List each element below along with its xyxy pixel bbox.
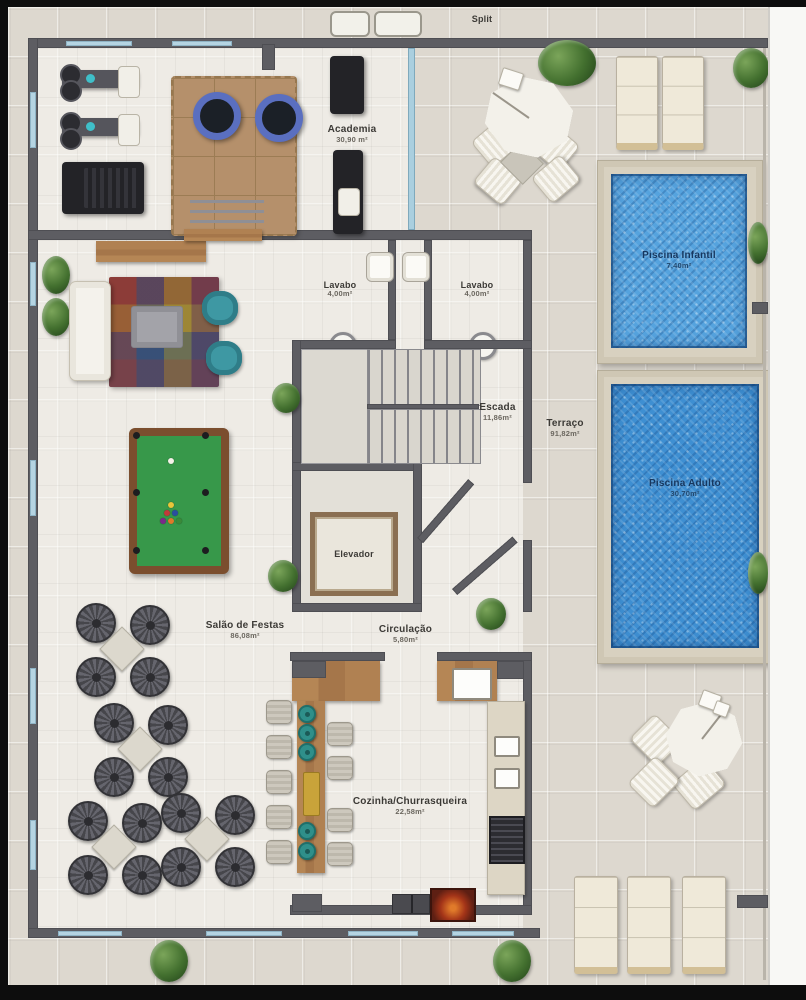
- frame-top: [0, 0, 806, 7]
- lavabo-right-label: Lavabo 4,00m²: [428, 280, 526, 299]
- dining-chair: [148, 757, 188, 797]
- plant-right-edge-2: [748, 552, 768, 594]
- elevator-car: Elevador: [310, 512, 398, 596]
- wicker-stool: [327, 722, 353, 746]
- dining-chair: [215, 847, 255, 887]
- wall-pier-gym: [262, 44, 275, 70]
- scan-white-margin: [768, 7, 806, 985]
- gym-machine-right-1: [330, 56, 364, 114]
- bar-stool-teal: [298, 705, 316, 723]
- wicker-stool: [266, 735, 292, 759]
- exercise-ball-2: [255, 94, 303, 142]
- circulation-area: 5,80m²: [358, 636, 453, 645]
- window-bottom-1: [58, 931, 122, 936]
- wicker-stool: [266, 700, 292, 724]
- window-left-4: [30, 668, 36, 724]
- split-ac-unit-2: [374, 11, 422, 37]
- lavabo-basin-1: [366, 252, 394, 282]
- kitchen-pier-left: [292, 661, 326, 678]
- bar-tray: [303, 772, 320, 816]
- window-left-3: [30, 460, 36, 516]
- exercise-ball-1: [193, 92, 241, 140]
- wicker-stool: [327, 756, 353, 780]
- lounge-chair-top-1: [616, 56, 658, 150]
- gym-seat-dot-2: [86, 122, 95, 131]
- kids-pool-label: Piscina Infantil 7,40m²: [614, 250, 744, 270]
- split-label: Split: [452, 14, 512, 24]
- window-bottom-2: [206, 931, 282, 936]
- party-room-area: 86,08m²: [180, 632, 310, 641]
- sideboard: [96, 241, 206, 262]
- gym-weight-1b: [60, 80, 82, 102]
- coffee-table: [131, 306, 183, 348]
- cabinet-doors: [392, 894, 430, 914]
- kitchen-sink-1: [494, 736, 520, 757]
- kitchen-pier-right: [497, 661, 524, 679]
- wicker-stool: [266, 840, 292, 864]
- gym-glass-wall: [408, 48, 415, 230]
- circulation-name: Circulação: [379, 624, 432, 635]
- pool-table-pocket-bl: [133, 547, 140, 554]
- window-bottom-4: [452, 931, 514, 936]
- dining-chair: [130, 605, 170, 645]
- pool-table-pocket-ml: [133, 489, 140, 496]
- barbecue-grill: [430, 888, 476, 922]
- kitchen-appliance: [452, 668, 492, 700]
- wall-stub-right-1: [752, 302, 768, 314]
- window-left-2: [30, 262, 36, 306]
- kitchen-side-counter: [487, 701, 525, 895]
- split-name: Split: [472, 14, 493, 24]
- armchair-1: [202, 291, 238, 325]
- wall-shelf: [184, 229, 262, 241]
- plant-living-2: [42, 298, 70, 336]
- terrace-area: 91,82m²: [522, 430, 608, 439]
- kitchen-area: 22,58m²: [330, 808, 490, 817]
- dining-chair: [148, 705, 188, 745]
- elevator-label: Elevador: [334, 549, 374, 559]
- plant-core-west-1: [272, 383, 300, 413]
- wall-kitchen-top-left: [290, 652, 385, 661]
- wicker-stool: [266, 770, 292, 794]
- window-top-2: [172, 41, 232, 46]
- gym-pad-2: [118, 114, 140, 146]
- lavabo-right-area: 4,00m²: [428, 290, 526, 299]
- kitchen-sink-2: [494, 768, 520, 789]
- wall-east-mid: [523, 540, 532, 612]
- sofa: [69, 281, 111, 381]
- ball-rack-6: [176, 518, 182, 524]
- lounge-chair-bottom-1: [574, 876, 618, 974]
- adult-pool-area: 30,70m²: [618, 490, 752, 499]
- terrace-name: Terraço: [546, 418, 583, 429]
- dining-chair: [76, 657, 116, 697]
- dining-chair: [122, 855, 162, 895]
- barbell-rack: [190, 200, 264, 226]
- ball-rack-4: [160, 518, 166, 524]
- gym-pad-1: [118, 66, 140, 98]
- wall-core-bottom: [292, 603, 422, 612]
- gym-seat-dot-1: [86, 74, 95, 83]
- wicker-stool: [266, 805, 292, 829]
- lounge-chair-bottom-2: [627, 876, 671, 974]
- plant-core-west-2: [268, 560, 298, 592]
- party-room-label: Salão de Festas 86,08m²: [180, 620, 310, 640]
- kitchen-pier-bottom: [292, 894, 322, 912]
- stair-flight-upper: [367, 349, 481, 406]
- wall-stub-right-2: [737, 895, 768, 908]
- gym-weight-2b: [60, 128, 82, 150]
- gym-name: Academia: [328, 124, 377, 135]
- plant-right-edge-1: [748, 222, 768, 264]
- treadmill-belt: [84, 168, 138, 208]
- plant-circulation: [476, 598, 506, 630]
- cue-ball: [168, 458, 174, 464]
- ball-rack-3: [172, 510, 178, 516]
- window-top-1: [66, 41, 132, 46]
- gym-machine-right-seat: [338, 188, 360, 216]
- dining-chair: [130, 657, 170, 697]
- party-room-name: Salão de Festas: [206, 620, 285, 631]
- wicker-stool: [327, 842, 353, 866]
- wall-top: [28, 38, 768, 48]
- wall-east-upper: [523, 240, 532, 483]
- kitchen-label: Cozinha/Churrasqueira 22,58m²: [330, 796, 490, 816]
- bar-stool-teal: [298, 743, 316, 761]
- dining-chair: [94, 757, 134, 797]
- ball-rack-1: [168, 502, 174, 508]
- wall-core-top-right: [424, 340, 532, 349]
- stairs-name: Escada: [479, 402, 515, 413]
- pool-table: [129, 428, 229, 574]
- cooktop-grill: [489, 816, 525, 864]
- terrace-label: Terraço 91,82m²: [522, 418, 608, 438]
- wall-kitchen-top-right: [437, 652, 532, 661]
- window-left-5: [30, 820, 36, 870]
- bar-stool-teal: [298, 822, 316, 840]
- pool-table-pocket-mr: [202, 489, 209, 496]
- lounge-chair-top-2: [662, 56, 704, 150]
- window-bottom-3: [348, 931, 418, 936]
- window-left-1: [30, 92, 36, 148]
- wall-core-top-left: [292, 340, 396, 349]
- gym-area: 30,90 m²: [300, 136, 404, 145]
- kids-pool-area: 7,40m²: [614, 262, 744, 271]
- split-ac-unit-1: [330, 11, 370, 37]
- ball-rack-5: [168, 518, 174, 524]
- adult-pool-water: [611, 384, 759, 648]
- ball-rack-2: [164, 510, 170, 516]
- kids-pool-name: Piscina Infantil: [642, 250, 716, 261]
- bar-stool-teal: [298, 842, 316, 860]
- plant-terrace-corner: [733, 48, 769, 88]
- pool-table-pocket-br: [202, 547, 209, 554]
- dining-chair: [68, 855, 108, 895]
- lounge-chair-bottom-3: [682, 876, 726, 974]
- plant-terrace-top: [538, 40, 596, 86]
- plant-balcony-2: [493, 940, 531, 982]
- circulation-label: Circulação 5,80m²: [358, 624, 453, 644]
- stair-landing: [301, 349, 369, 464]
- adult-pool-label: Piscina Adulto 30,70m²: [618, 478, 752, 498]
- frame-left: [0, 0, 8, 1000]
- dining-chair: [161, 847, 201, 887]
- gym-label: Academia 30,90 m²: [300, 124, 404, 144]
- dining-chair: [215, 795, 255, 835]
- lavabo-basin-2: [402, 252, 430, 282]
- wicker-stool: [327, 808, 353, 832]
- terrace-edge-line: [763, 48, 766, 980]
- pool-table-pocket-tl: [133, 432, 140, 439]
- lavabo-left-area: 4,00m²: [292, 290, 388, 299]
- dining-chair: [122, 803, 162, 843]
- plant-living-1: [42, 256, 70, 294]
- plant-balcony-1: [150, 940, 188, 982]
- kitchen-name: Cozinha/Churrasqueira: [353, 796, 467, 807]
- pool-table-pocket-tr: [202, 432, 209, 439]
- floor-plan-screenshot: { "title": "Residential common-area floo…: [0, 0, 806, 1000]
- adult-pool-name: Piscina Adulto: [649, 478, 721, 489]
- bar-stool-teal: [298, 724, 316, 742]
- armchair-2: [206, 341, 242, 375]
- lavabo-left-label: Lavabo 4,00m²: [292, 280, 388, 299]
- frame-bottom: [0, 985, 806, 1000]
